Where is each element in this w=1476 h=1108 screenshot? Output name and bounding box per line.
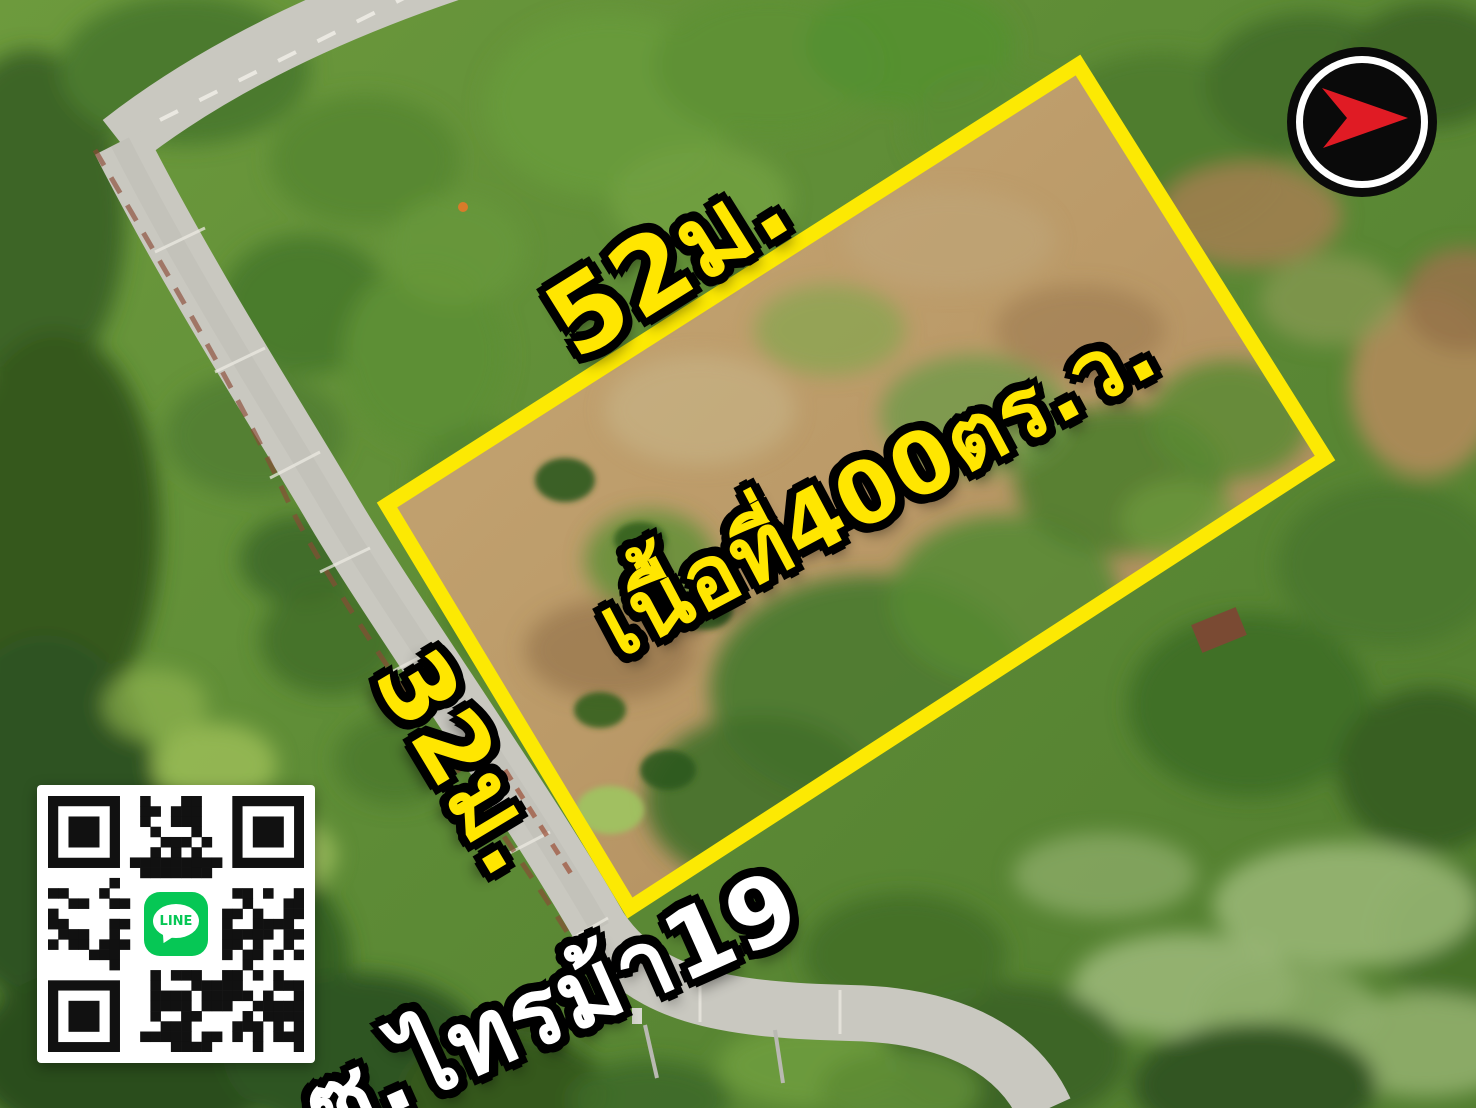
line-logo-text: LINE bbox=[160, 914, 193, 929]
line-badge-backing: LINE bbox=[139, 887, 213, 961]
line-speech-bubble: LINE bbox=[153, 904, 199, 938]
brand-logo bbox=[1287, 47, 1437, 197]
arrow-icon bbox=[1287, 47, 1437, 197]
line-icon: LINE bbox=[144, 892, 208, 956]
aerial-photo: 52ม. 32ม. เนื้อที่400ตร.ว. ซ.ไทรม้า19 LI… bbox=[0, 0, 1476, 1108]
line-qr-code: LINE bbox=[37, 785, 315, 1063]
